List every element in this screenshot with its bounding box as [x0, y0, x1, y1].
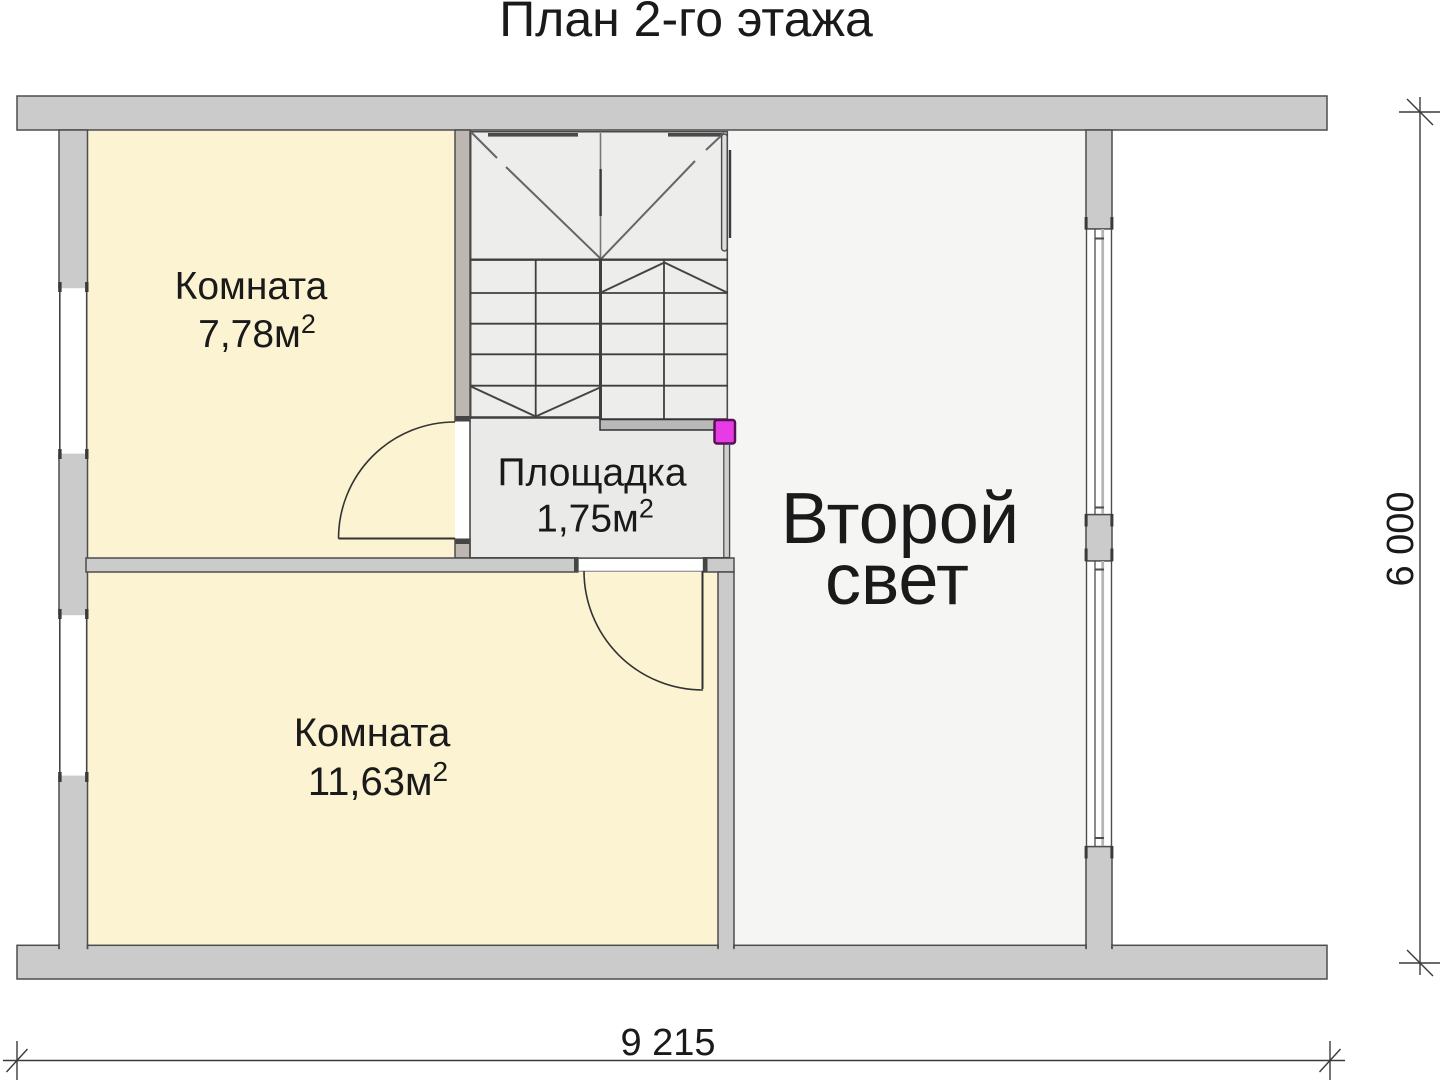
- svg-text:6 000: 6 000: [1380, 491, 1422, 586]
- svg-text:9 215: 9 215: [620, 1022, 715, 1064]
- svg-text:Комната: Комната: [175, 265, 328, 308]
- svg-text:11,63м2: 11,63м2: [308, 756, 448, 804]
- svg-text:Площадка: Площадка: [497, 452, 686, 495]
- svg-text:1,75м2: 1,75м2: [536, 494, 654, 541]
- svg-text:Комната: Комната: [294, 711, 451, 755]
- svg-text:План 2-го этажа: План 2-го этажа: [499, 0, 873, 47]
- svg-text:свет: свет: [825, 540, 969, 620]
- svg-text:7,78м2: 7,78м2: [198, 309, 316, 356]
